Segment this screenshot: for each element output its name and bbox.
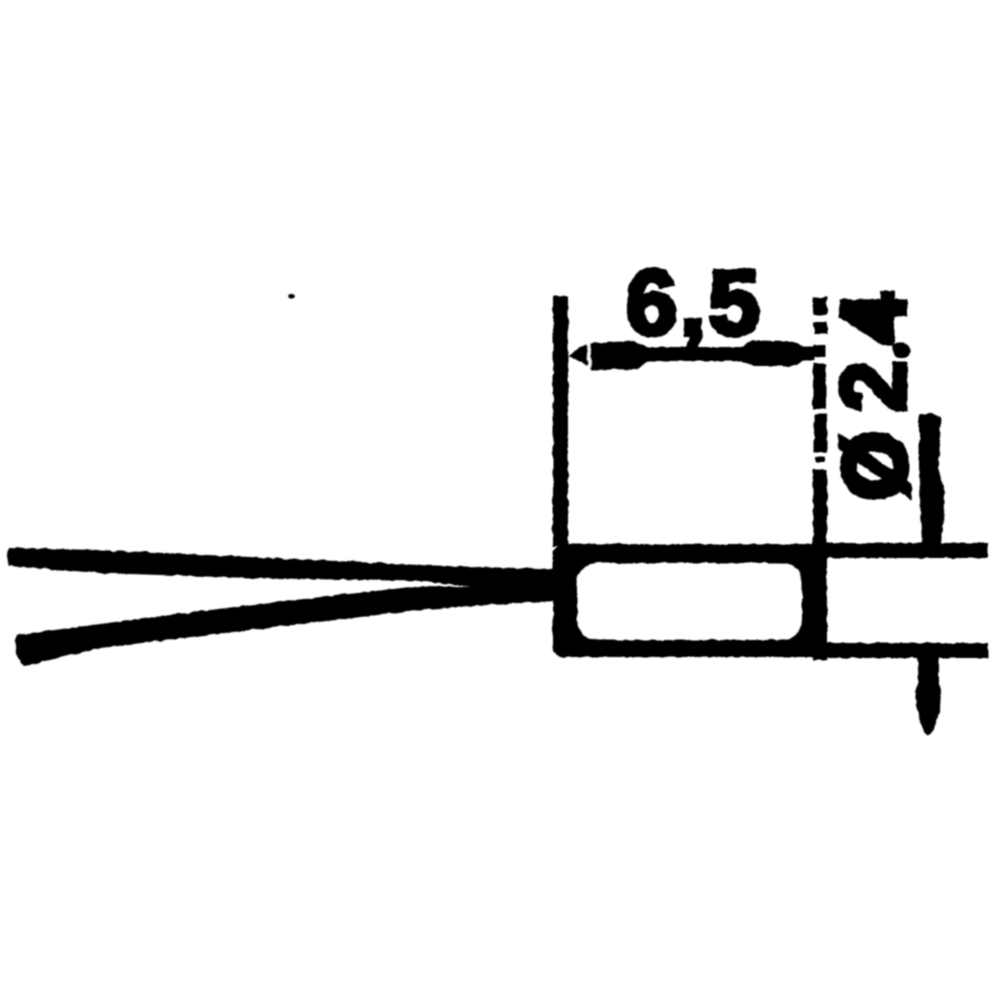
svg-text:Ø24: Ø24 <box>823 293 925 500</box>
svg-text:6,5: 6,5 <box>626 252 763 354</box>
